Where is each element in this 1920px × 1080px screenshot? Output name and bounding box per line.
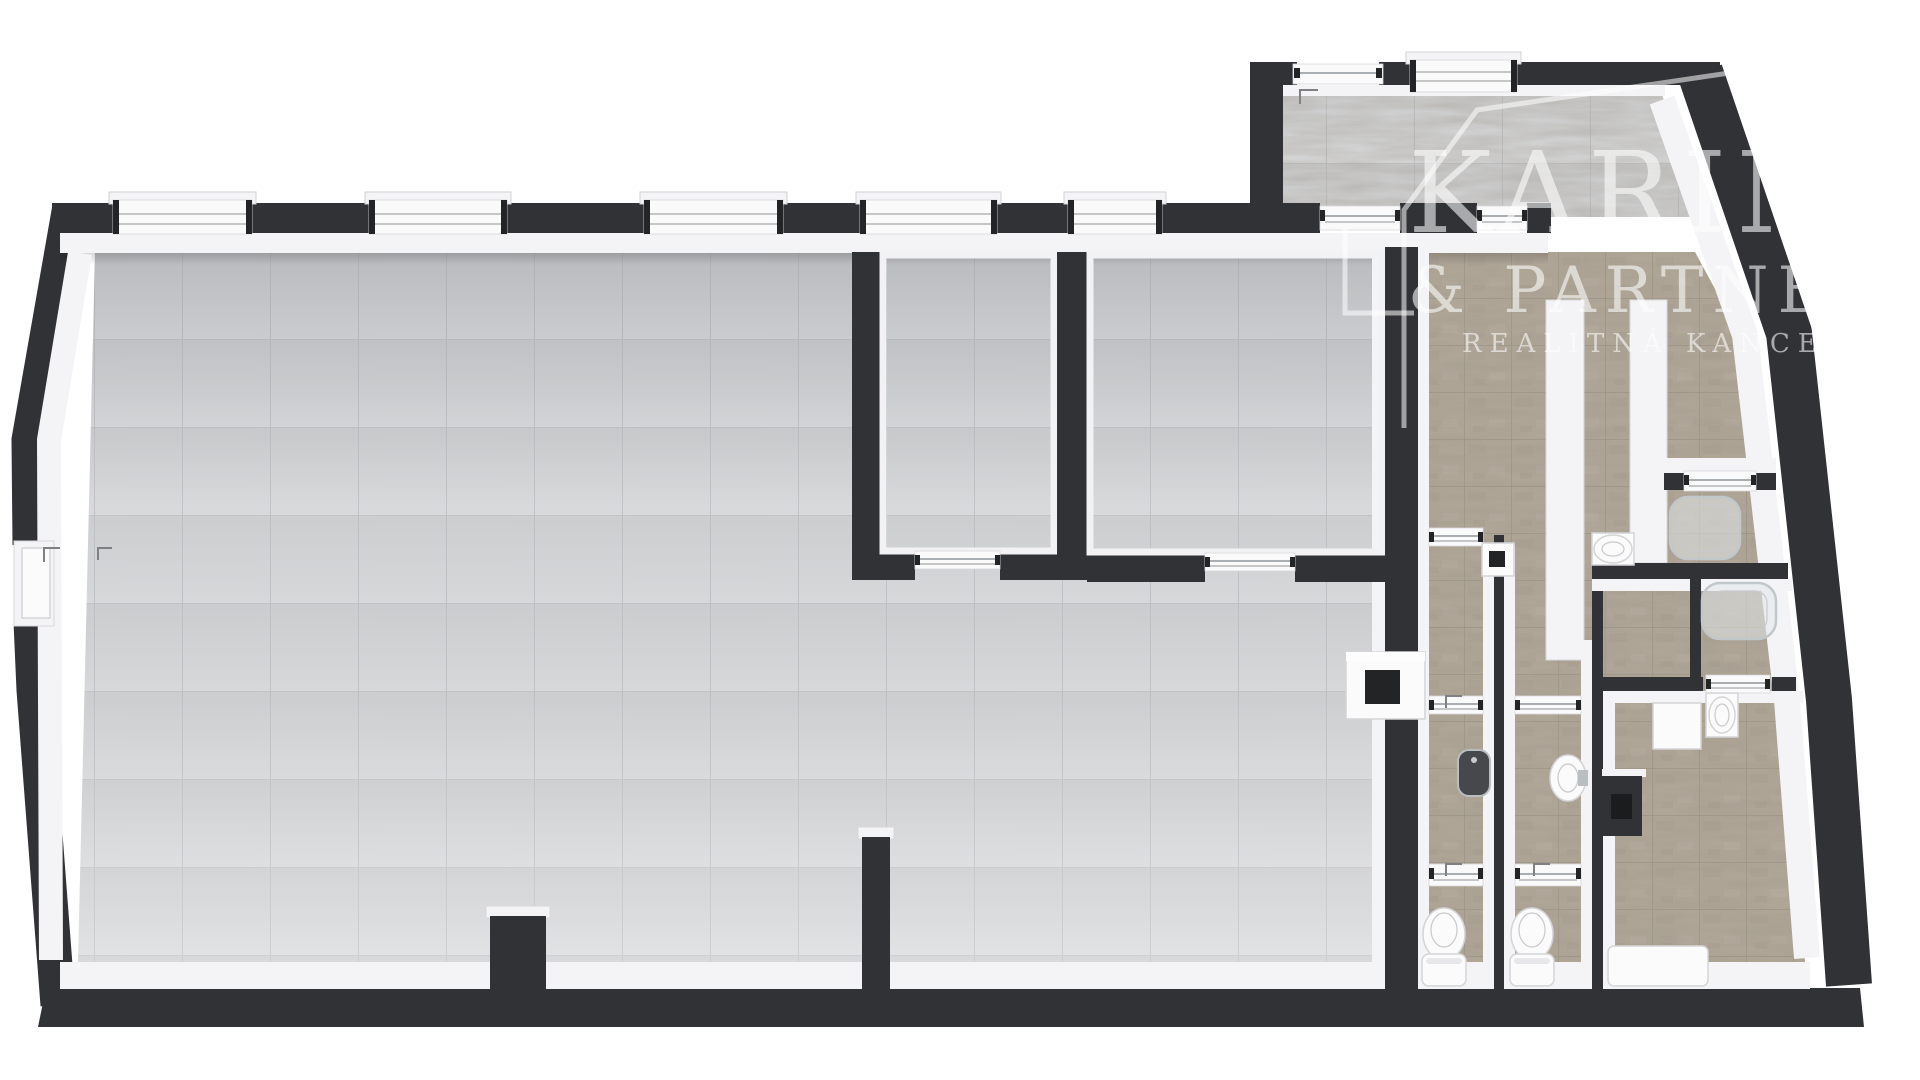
- threshold-stall-2: [1515, 864, 1581, 886]
- toilet-icon: [1422, 908, 1466, 986]
- threshold-stall-1: [1429, 864, 1483, 886]
- threshold-upper-room: [1684, 471, 1756, 491]
- sink-cabinet-corridor: [1482, 543, 1514, 576]
- threshold-corridor2-mid: [1515, 696, 1581, 714]
- stall-divider-wall: [1494, 535, 1504, 990]
- threshold-corridor1-top: [1429, 528, 1483, 546]
- sink-cabinet-main-room: [1346, 652, 1425, 719]
- washbasin-icon: [1592, 533, 1634, 565]
- shower-cabin-icon: [1670, 497, 1740, 559]
- washbasin-icon-2: [1706, 693, 1738, 737]
- urinal-icon: [1458, 750, 1490, 796]
- floor-plan-svg: KARIN & PARTNERS REALITNÁ KANCELÁRIA: [0, 0, 1920, 1080]
- window-2: [365, 192, 511, 234]
- threshold-vestibule-roomb: [1320, 206, 1400, 230]
- window-1: [109, 192, 256, 234]
- niche-block: [1602, 769, 1646, 836]
- window-6: [1406, 52, 1521, 92]
- wall-stub-1: [486, 906, 550, 990]
- toilet-icon-2: [1510, 908, 1554, 986]
- threshold-room-a: [915, 551, 1000, 569]
- bottom-wall: [38, 988, 1864, 1027]
- room-a-west-wall: [852, 252, 880, 580]
- threshold-corridor1-mid: [1429, 696, 1483, 714]
- watermark-line1: KARIN: [1408, 129, 1845, 259]
- room-divider-wall: [1057, 252, 1087, 580]
- floor-plan-image: KARIN & PARTNERS REALITNÁ KANCELÁRIA: [0, 0, 1920, 1080]
- window-5: [1064, 192, 1166, 234]
- wall-stub-2: [858, 827, 894, 990]
- window-3: [640, 192, 787, 234]
- cabinet: [1653, 703, 1701, 749]
- shower-cabin-icon-2: [1702, 583, 1776, 639]
- corridor-east-wall: [1592, 591, 1603, 990]
- threshold-lower-room: [1706, 675, 1770, 693]
- shower-tray: [1608, 946, 1708, 986]
- main-room-floor-shading: [78, 252, 1385, 962]
- left-entrance-door: [14, 541, 60, 626]
- window-4: [856, 192, 1001, 234]
- threshold-room-b: [1205, 553, 1295, 571]
- vestibule-entrance-door: [1293, 64, 1383, 84]
- watermark-line2: & PARTNERS: [1408, 254, 1920, 328]
- watermark-line3: REALITNÁ KANCELÁRIA: [1462, 327, 1920, 359]
